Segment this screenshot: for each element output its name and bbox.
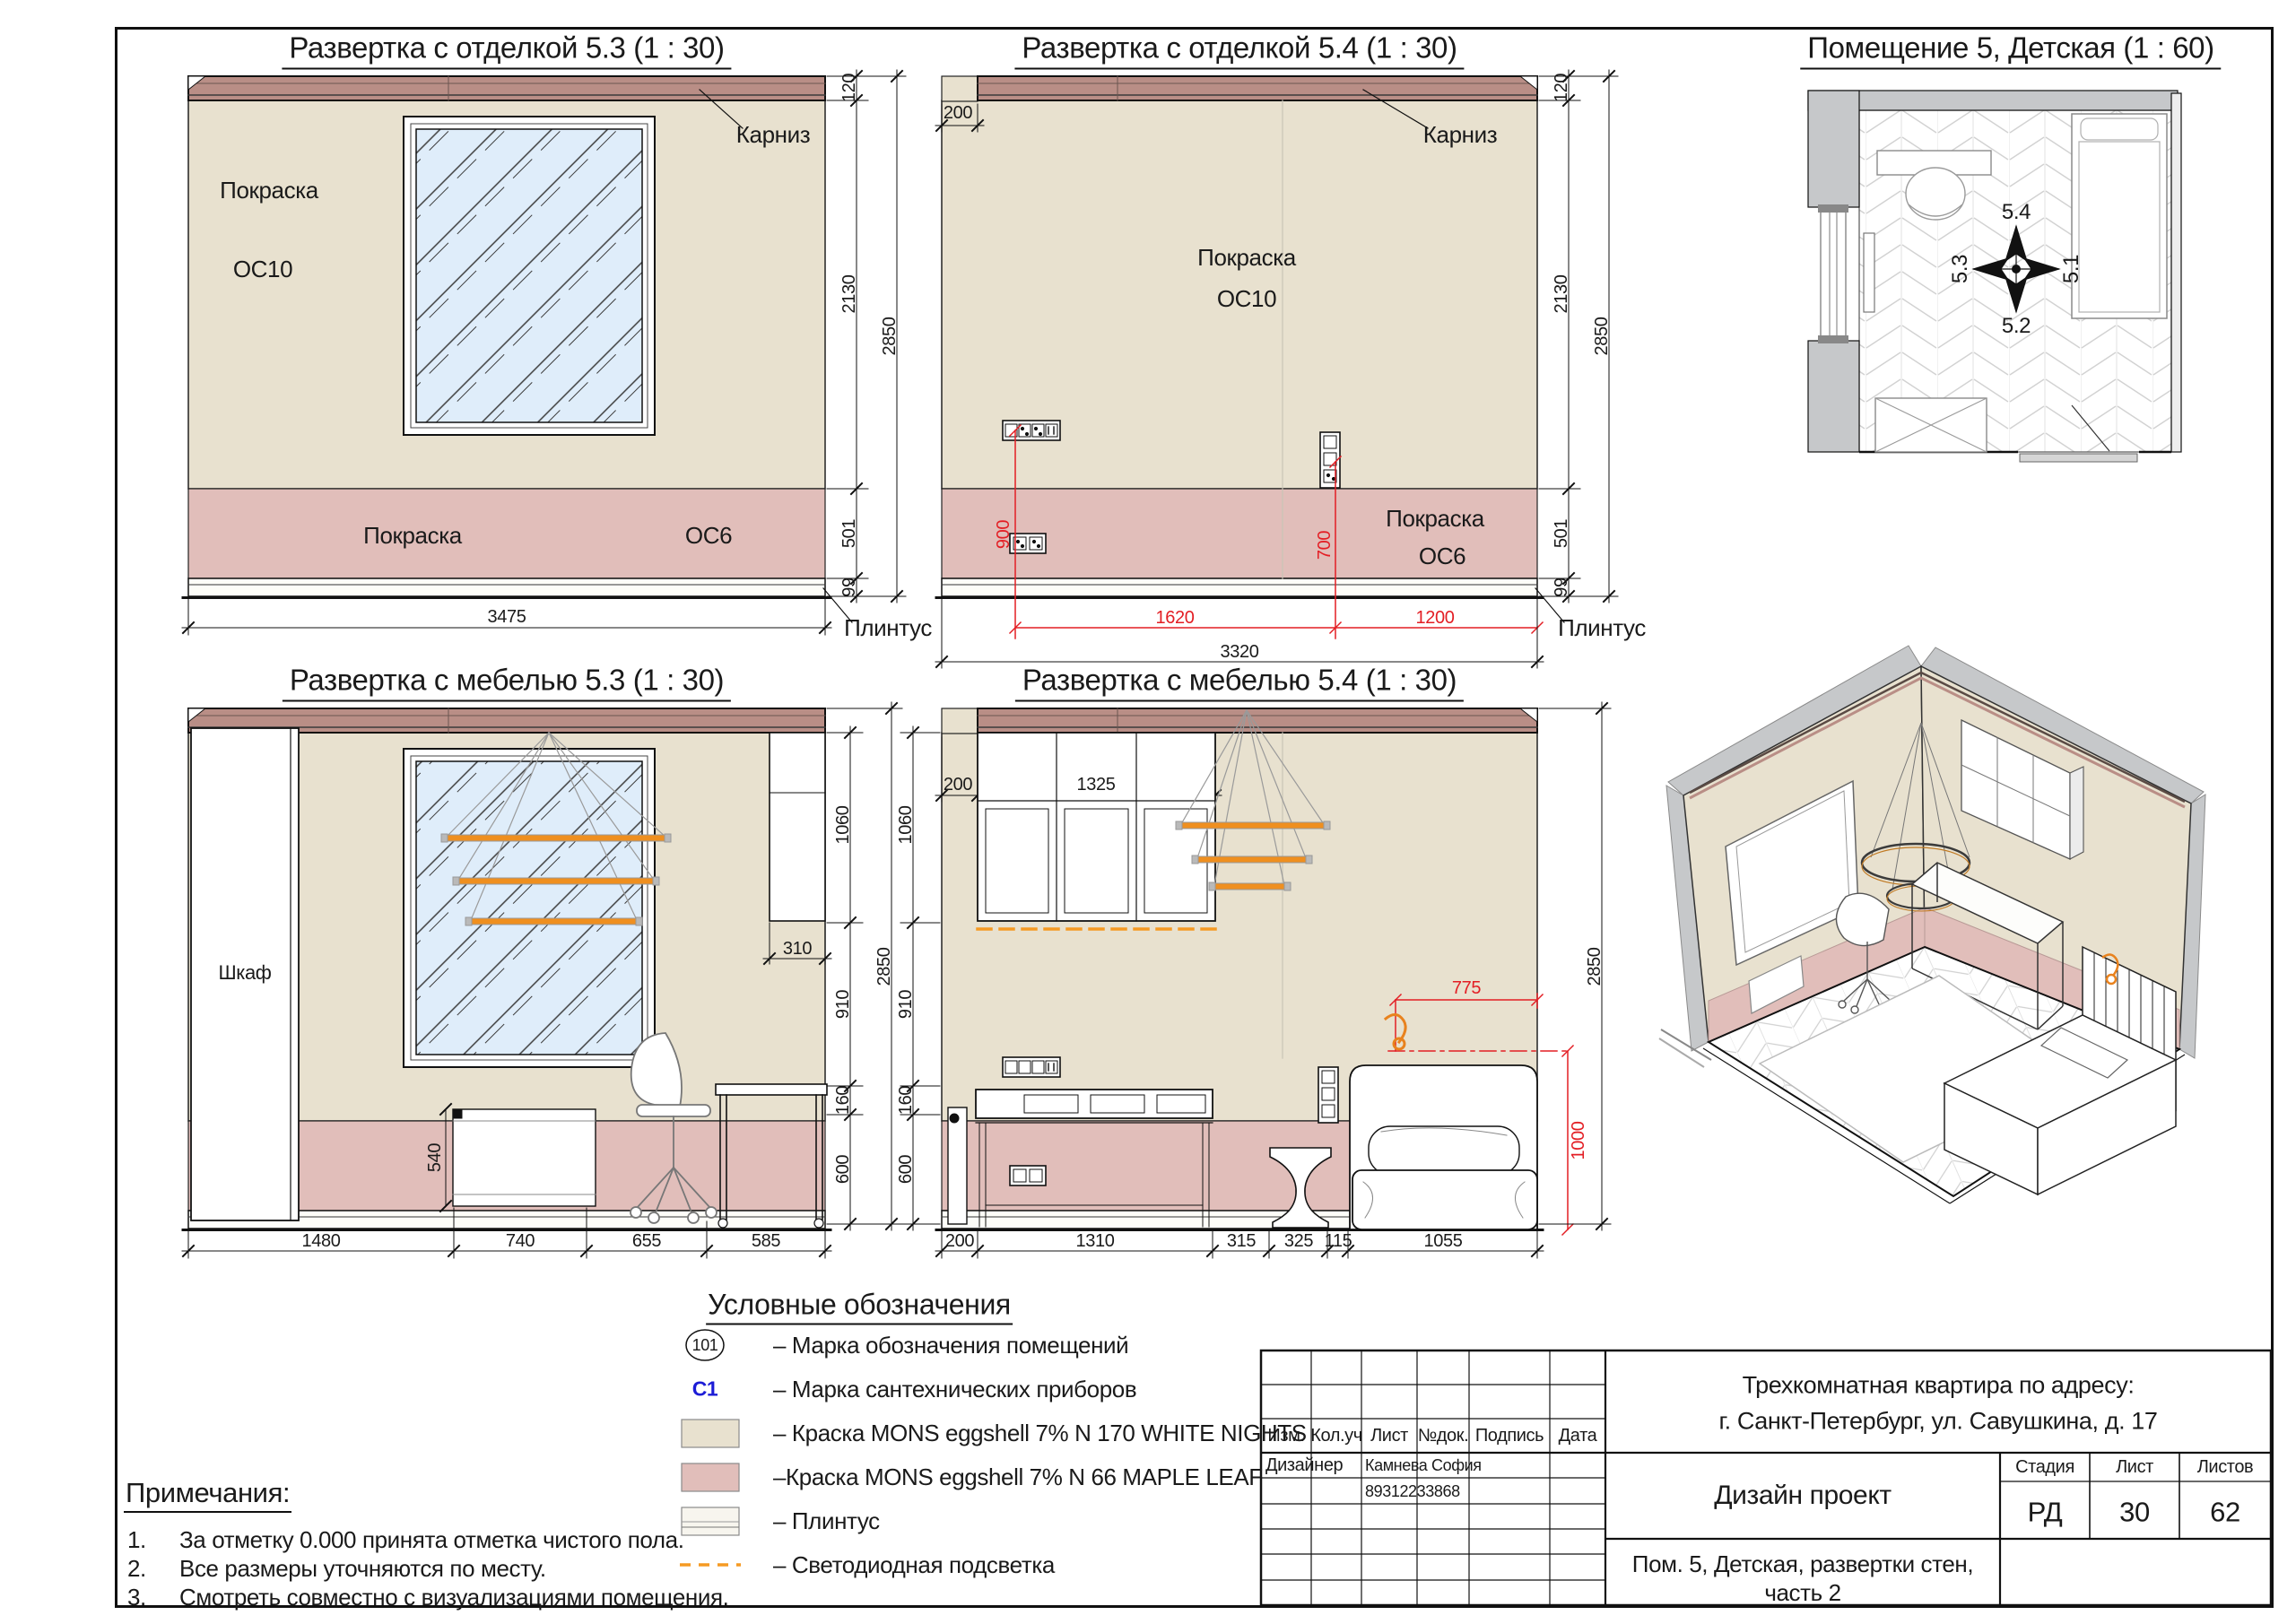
stamp-address-1: Трехкомнатная квартира по адресу: xyxy=(1743,1374,2135,1398)
paint-label: Покраска xyxy=(1197,246,1296,269)
stamp-col: №док. xyxy=(1418,1427,1469,1445)
dim: 1060 xyxy=(897,806,915,845)
view-label-54: 5.4 xyxy=(2002,202,2031,223)
dim: 585 xyxy=(752,1232,780,1250)
dim: 200 xyxy=(944,104,972,122)
dim: 2850 xyxy=(875,948,893,986)
dim: 2130 xyxy=(1552,275,1570,314)
dim: 99 xyxy=(1552,578,1570,596)
dim: 1060 xyxy=(834,806,852,845)
dim-red: 1620 xyxy=(1156,609,1195,627)
dim: 501 xyxy=(840,519,858,548)
paint-label: Покраска xyxy=(220,178,318,202)
dim: 740 xyxy=(506,1232,535,1250)
wall-cabinet xyxy=(770,733,825,921)
stamp-sheet: 30 xyxy=(2119,1498,2150,1526)
dim: 1480 xyxy=(302,1232,341,1250)
vertical-radiator xyxy=(948,1107,967,1224)
stamp-col: Кол.уч xyxy=(1310,1427,1362,1445)
stamp-col: Дата xyxy=(1559,1427,1597,1445)
floor-plan-drawing xyxy=(1808,91,2181,462)
legend-item-label: – Краска MONS eggshell 7% N 170 WHITE NI… xyxy=(773,1421,1307,1445)
view-label-52: 5.2 xyxy=(2002,316,2031,337)
dim-red: 700 xyxy=(1316,531,1334,560)
dim: 910 xyxy=(834,990,852,1019)
paint-code-os6: ОС6 xyxy=(685,524,732,547)
legend-room-mark: 101 xyxy=(692,1337,718,1353)
title-floor-plan: Помещение 5, Детская (1 : 60) xyxy=(1800,33,2221,70)
stamp-designer-phone: 89312233868 xyxy=(1365,1483,1460,1499)
dim: 1055 xyxy=(1424,1232,1463,1250)
stamp-designer-label: Дизайнер xyxy=(1265,1456,1343,1474)
elev-54-finish-drawing xyxy=(935,70,1618,668)
dim: 600 xyxy=(897,1155,915,1184)
dim: 325 xyxy=(1284,1232,1313,1250)
note-number: 1. xyxy=(127,1528,146,1551)
dim: 1325 xyxy=(1077,776,1116,794)
dim: 200 xyxy=(944,776,972,794)
dim: 600 xyxy=(834,1155,852,1184)
legend-item-label: – Марка сантехнических приборов xyxy=(773,1377,1136,1401)
socket-vertical-3b xyxy=(1318,1067,1338,1123)
title-elev-54-finish: Развертка с отделкой 5.4 (1 : 30) xyxy=(1014,33,1464,70)
note-text: Смотреть совместно с визуализациями поме… xyxy=(179,1585,729,1609)
view-label-51: 5.1 xyxy=(2061,255,2083,283)
dim: 1310 xyxy=(1076,1232,1115,1250)
dim-red: 775 xyxy=(1452,979,1481,997)
socket-4gang-2 xyxy=(1003,1057,1060,1077)
dim: 540 xyxy=(426,1143,444,1172)
legend-title: Условные обозначения xyxy=(706,1290,1013,1325)
bed xyxy=(1350,1065,1537,1229)
dim: 310 xyxy=(783,940,812,958)
plinth-label: Плинтус xyxy=(844,616,932,639)
title-elev-53-finish: Развертка с отделкой 5.3 (1 : 30) xyxy=(282,33,731,70)
dim: 200 xyxy=(945,1232,974,1250)
dim: 120 xyxy=(840,74,858,102)
paint-label: Покраска xyxy=(1386,507,1484,530)
notes-title: Примечания: xyxy=(124,1479,291,1513)
title-elev-53-furniture: Развертка с мебелью 5.3 (1 : 30) xyxy=(283,665,731,702)
paint-code-os6: ОС6 xyxy=(1419,544,1465,568)
dim-width: 3320 xyxy=(1221,643,1259,661)
dim: 2130 xyxy=(840,275,858,314)
wardrobe-label: Шкаф xyxy=(218,963,271,983)
dim: 160 xyxy=(897,1086,915,1115)
plinth-label: Плинтус xyxy=(1558,616,1646,639)
paint-code-os10: ОС10 xyxy=(1217,287,1276,310)
dim: 501 xyxy=(1552,519,1570,548)
stamp-sheet-label: Лист xyxy=(2116,1458,2153,1476)
socket-2gang-2 xyxy=(1010,1166,1046,1185)
stamp-col: Подпись xyxy=(1475,1427,1544,1445)
stamp-col: Изм. xyxy=(1267,1427,1304,1445)
drawing-sheet: Развертка с отделкой 5.3 (1 : 30) Развер… xyxy=(0,0,2296,1624)
dim: 115 xyxy=(1325,1232,1352,1250)
dim: 655 xyxy=(632,1232,661,1250)
dim: 160 xyxy=(834,1086,852,1115)
legend-symbols xyxy=(680,1330,741,1565)
dim: 99 xyxy=(840,578,858,596)
elev-54-furniture-drawing xyxy=(900,702,1611,1258)
legend-item-label: – Плинтус xyxy=(773,1509,880,1533)
stamp-project: Дизайн проект xyxy=(1714,1482,1891,1509)
dim: 2850 xyxy=(881,317,899,356)
dim-red: 1000 xyxy=(1570,1122,1587,1160)
note-number: 2. xyxy=(127,1557,146,1580)
cornice-label: Карниз xyxy=(1423,123,1497,146)
stamp-sheets-label: Листов xyxy=(2197,1458,2254,1476)
legend-plumbing-mark: С1 xyxy=(692,1379,718,1400)
dim: 2850 xyxy=(1586,948,1604,986)
dim: 315 xyxy=(1227,1232,1256,1250)
stamp-object-2: часть 2 xyxy=(1764,1581,1840,1604)
stamp-stage: РД xyxy=(2028,1498,2063,1526)
paint-code-os10: ОС10 xyxy=(233,257,292,281)
dim: 120 xyxy=(1552,74,1570,102)
dim-red: 1200 xyxy=(1416,609,1455,627)
radiator xyxy=(453,1109,596,1206)
elev-53-furniture-drawing xyxy=(182,702,902,1258)
stamp-object-1: Пом. 5, Детская, развертки стен, xyxy=(1632,1552,1973,1576)
dim: 910 xyxy=(897,990,915,1019)
cornice-label: Карниз xyxy=(736,123,810,146)
isometric-room-view xyxy=(1659,646,2205,1203)
legend-item-label: – Марка обозначения помещений xyxy=(773,1333,1128,1357)
view-label-53: 5.3 xyxy=(1950,255,1971,283)
elev-53-finish-drawing xyxy=(182,70,906,635)
legend-item-label: – Светодиодная подсветка xyxy=(773,1553,1055,1576)
stamp-designer-name: Камнева София xyxy=(1365,1457,1482,1473)
legend-item-label: –Краска MONS eggshell 7% N 66 MAPLE LEAF xyxy=(773,1465,1263,1489)
dim: 2850 xyxy=(1593,317,1611,356)
stamp-address-2: г. Санкт-Петербург, ул. Савушкина, д. 17 xyxy=(1718,1410,2157,1434)
stamp-col: Лист xyxy=(1370,1427,1408,1445)
dim-width: 3475 xyxy=(488,608,526,626)
stamp-sheets: 62 xyxy=(2210,1498,2240,1526)
title-elev-54-furniture: Развертка с мебелью 5.4 (1 : 30) xyxy=(1015,665,1464,702)
dim-red: 900 xyxy=(995,520,1013,549)
note-text: За отметку 0.000 принята отметка чистого… xyxy=(179,1528,684,1551)
paint-label: Покраска xyxy=(363,524,462,547)
socket-4gang xyxy=(1003,421,1060,440)
stamp-stage-label: Стадия xyxy=(2015,1458,2074,1476)
note-number: 3. xyxy=(127,1585,146,1609)
note-text: Все размеры уточняются по месту. xyxy=(179,1557,546,1580)
